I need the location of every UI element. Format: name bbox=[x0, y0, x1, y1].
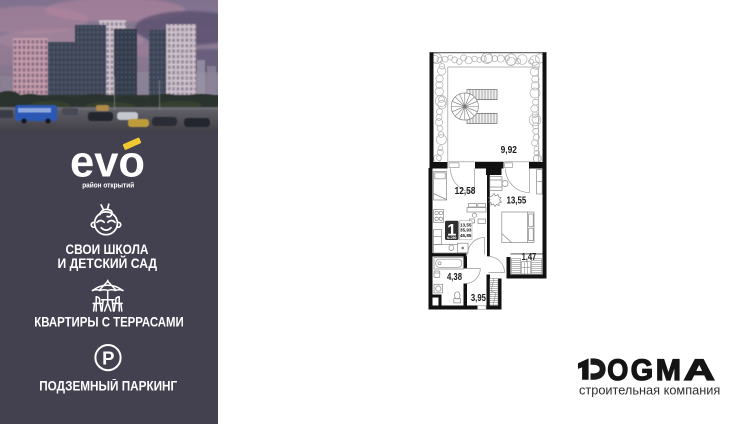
svg-text:строительная компания: строительная компания bbox=[579, 382, 720, 397]
svg-text:9,92: 9,92 bbox=[501, 145, 518, 156]
svg-text:КВАРТИРЫ С ТЕРРАСАМИ: КВАРТИРЫ С ТЕРРАСАМИ bbox=[34, 315, 184, 331]
svg-text:35,93: 35,93 bbox=[460, 228, 472, 233]
svg-text:ПОДЗЕМНЫЙ ПАРКИНГ: ПОДЗЕМНЫЙ ПАРКИНГ bbox=[39, 379, 177, 395]
svg-text:13,55: 13,55 bbox=[460, 222, 472, 227]
svg-text:район открытий: район открытий bbox=[82, 180, 134, 189]
svg-text:И ДЕТСКИЙ САД: И ДЕТСКИЙ САД bbox=[58, 254, 158, 272]
svg-text:12,58: 12,58 bbox=[455, 186, 476, 197]
svg-text:13,55: 13,55 bbox=[506, 196, 526, 207]
svg-text:45,85: 45,85 bbox=[460, 233, 472, 238]
svg-text:1,47: 1,47 bbox=[522, 252, 537, 263]
svg-text:4,38: 4,38 bbox=[447, 272, 462, 283]
svg-text:P: P bbox=[102, 347, 114, 368]
svg-text:evo: evo bbox=[70, 138, 145, 187]
svg-text:3,95: 3,95 bbox=[471, 293, 486, 304]
svg-text:№290: №290 bbox=[447, 236, 457, 240]
